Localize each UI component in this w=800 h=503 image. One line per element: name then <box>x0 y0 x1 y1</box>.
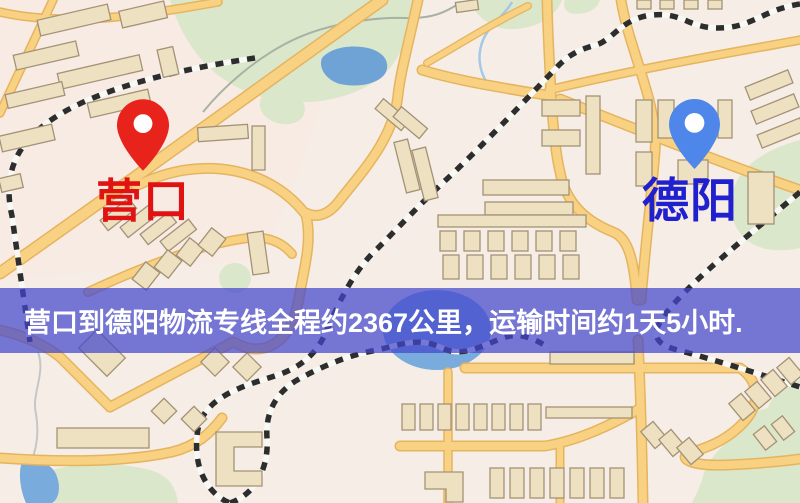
destination-label: 德阳 <box>642 177 738 224</box>
route-info-banner: 营口到德阳物流专线全程约2367公里，运输时间约1天5小时. <box>0 288 800 353</box>
map-view: 营口 德阳 营口到德阳物流专线全程约2367公里，运输时间约1天5小时. <box>0 0 800 503</box>
pin-hole <box>685 113 705 133</box>
origin-label: 营口 <box>96 178 190 224</box>
blue-location-pin-icon <box>669 99 720 169</box>
origin-pin[interactable] <box>117 99 169 171</box>
destination-pin[interactable] <box>668 99 721 169</box>
route-info-text: 营口到德阳物流专线全程约2367公里，运输时间约1天5小时. <box>0 301 743 340</box>
red-location-pin-icon <box>117 99 169 171</box>
map-canvas[interactable] <box>0 0 800 503</box>
pin-hole <box>134 114 153 133</box>
